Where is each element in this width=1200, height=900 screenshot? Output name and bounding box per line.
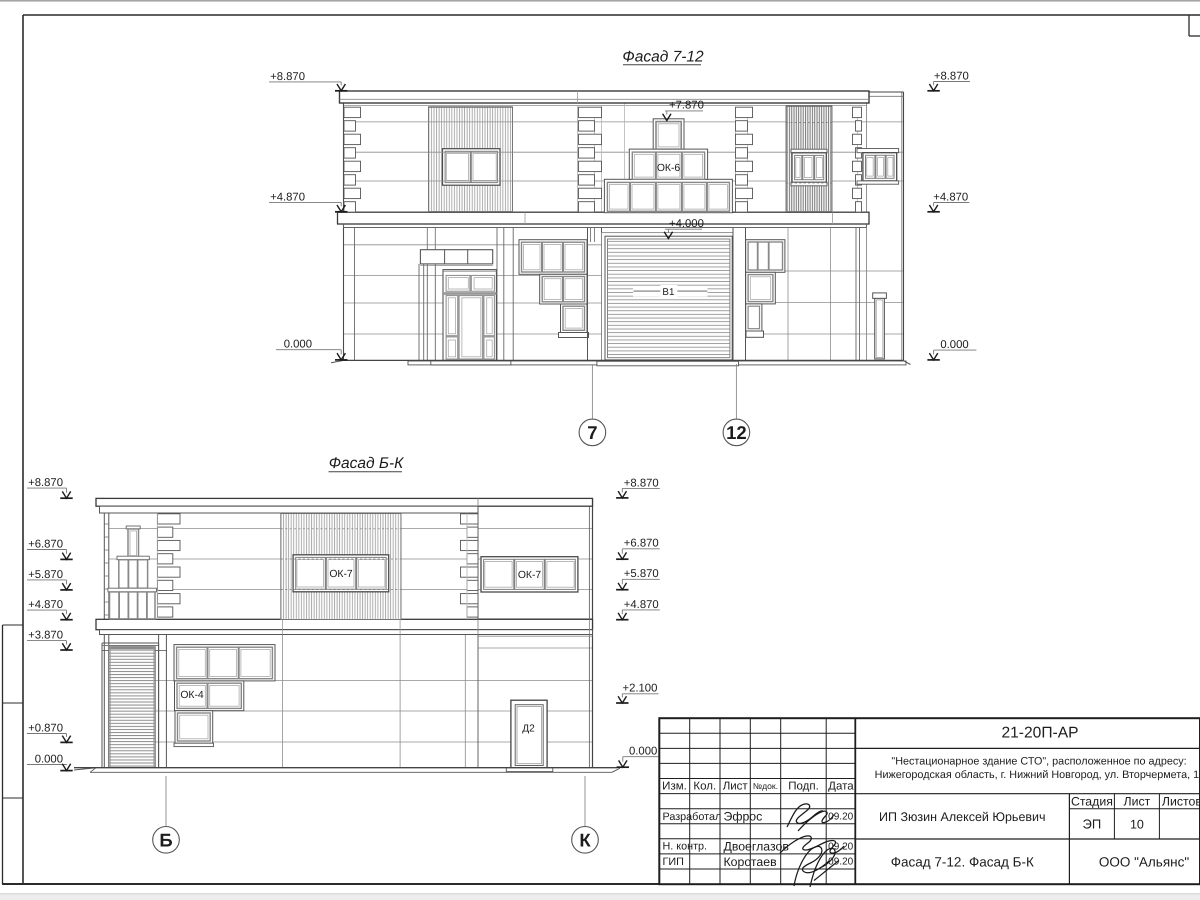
svg-text:+7.870: +7.870 [669, 100, 704, 112]
svg-text:+4.870: +4.870 [624, 599, 659, 611]
svg-text:Коротаев: Коротаев [724, 855, 777, 869]
svg-text:ОК-6: ОК-6 [657, 163, 681, 174]
svg-text:0.000: 0.000 [940, 339, 968, 351]
svg-text:Подп.: Подп. [788, 780, 819, 792]
svg-text:В1: В1 [662, 287, 674, 298]
svg-text:Двоеглазов: Двоеглазов [724, 840, 789, 854]
svg-text:Дата: Дата [828, 780, 854, 792]
svg-text:21-20П-АР: 21-20П-АР [1001, 725, 1078, 742]
svg-text:Нижегородская область, г. Нижн: Нижегородская область, г. Нижний Новгоро… [875, 769, 1200, 781]
svg-text:+6.870: +6.870 [28, 538, 63, 550]
svg-text:Листов: Листов [1162, 794, 1200, 808]
svg-text:ИП Зюзин Алексей Юрьевич: ИП Зюзин Алексей Юрьевич [879, 810, 1046, 824]
svg-text:+3.870: +3.870 [28, 630, 63, 642]
svg-text:ГИП: ГИП [663, 856, 684, 868]
svg-text:+8.870: +8.870 [624, 477, 659, 489]
svg-text:Б: Б [159, 829, 172, 850]
svg-text:К: К [579, 829, 591, 850]
svg-text:+5.870: +5.870 [28, 569, 63, 581]
svg-text:+4.870: +4.870 [933, 191, 968, 203]
svg-text:Стадия: Стадия [1071, 794, 1113, 808]
svg-text:+6.870: +6.870 [624, 538, 659, 550]
svg-text:+8.870: +8.870 [934, 70, 969, 82]
svg-text:+8.870: +8.870 [270, 71, 305, 83]
svg-text:7: 7 [587, 422, 597, 443]
svg-text:ОК-7: ОК-7 [329, 569, 353, 580]
svg-text:ООО "Альянс": ООО "Альянс" [1099, 855, 1189, 870]
svg-text:+4.870: +4.870 [28, 599, 63, 611]
svg-text:Фасад 7-12: Фасад 7-12 [622, 49, 704, 66]
svg-text:Н. контр.: Н. контр. [663, 841, 708, 853]
svg-text:0.000: 0.000 [629, 746, 657, 758]
svg-text:ОК-7: ОК-7 [518, 570, 542, 581]
svg-text:Фасад 7-12. Фасад Б-К: Фасад 7-12. Фасад Б-К [891, 855, 1034, 870]
svg-text:+8.870: +8.870 [28, 477, 63, 489]
svg-text:0.000: 0.000 [284, 339, 312, 351]
svg-text:10: 10 [1130, 818, 1144, 832]
svg-text:Изм.: Изм. [662, 780, 687, 792]
svg-text:ЭП: ЭП [1083, 817, 1102, 832]
svg-text:"Нестационарное здание СТО", р: "Нестационарное здание СТО", расположенн… [891, 756, 1186, 768]
svg-text:ОК-4: ОК-4 [180, 690, 204, 701]
svg-text:+2.100: +2.100 [623, 683, 658, 695]
svg-text:+4.870: +4.870 [270, 191, 305, 203]
svg-text:0.000: 0.000 [35, 753, 63, 765]
svg-text:№док.: №док. [753, 781, 778, 791]
svg-text:+4.000: +4.000 [669, 218, 704, 230]
svg-text:Эфрос: Эфрос [724, 810, 763, 824]
svg-text:Разработал: Разработал [663, 811, 722, 823]
svg-text:+0.870: +0.870 [28, 722, 63, 734]
svg-text:Фасад Б-К: Фасад Б-К [329, 455, 404, 472]
svg-text:Кол.: Кол. [693, 780, 716, 792]
svg-text:Лист: Лист [1124, 794, 1151, 808]
svg-text:Д2: Д2 [522, 724, 535, 735]
svg-text:12: 12 [726, 422, 747, 443]
svg-text:+5.870: +5.870 [624, 568, 659, 580]
svg-text:Лист: Лист [723, 780, 749, 792]
